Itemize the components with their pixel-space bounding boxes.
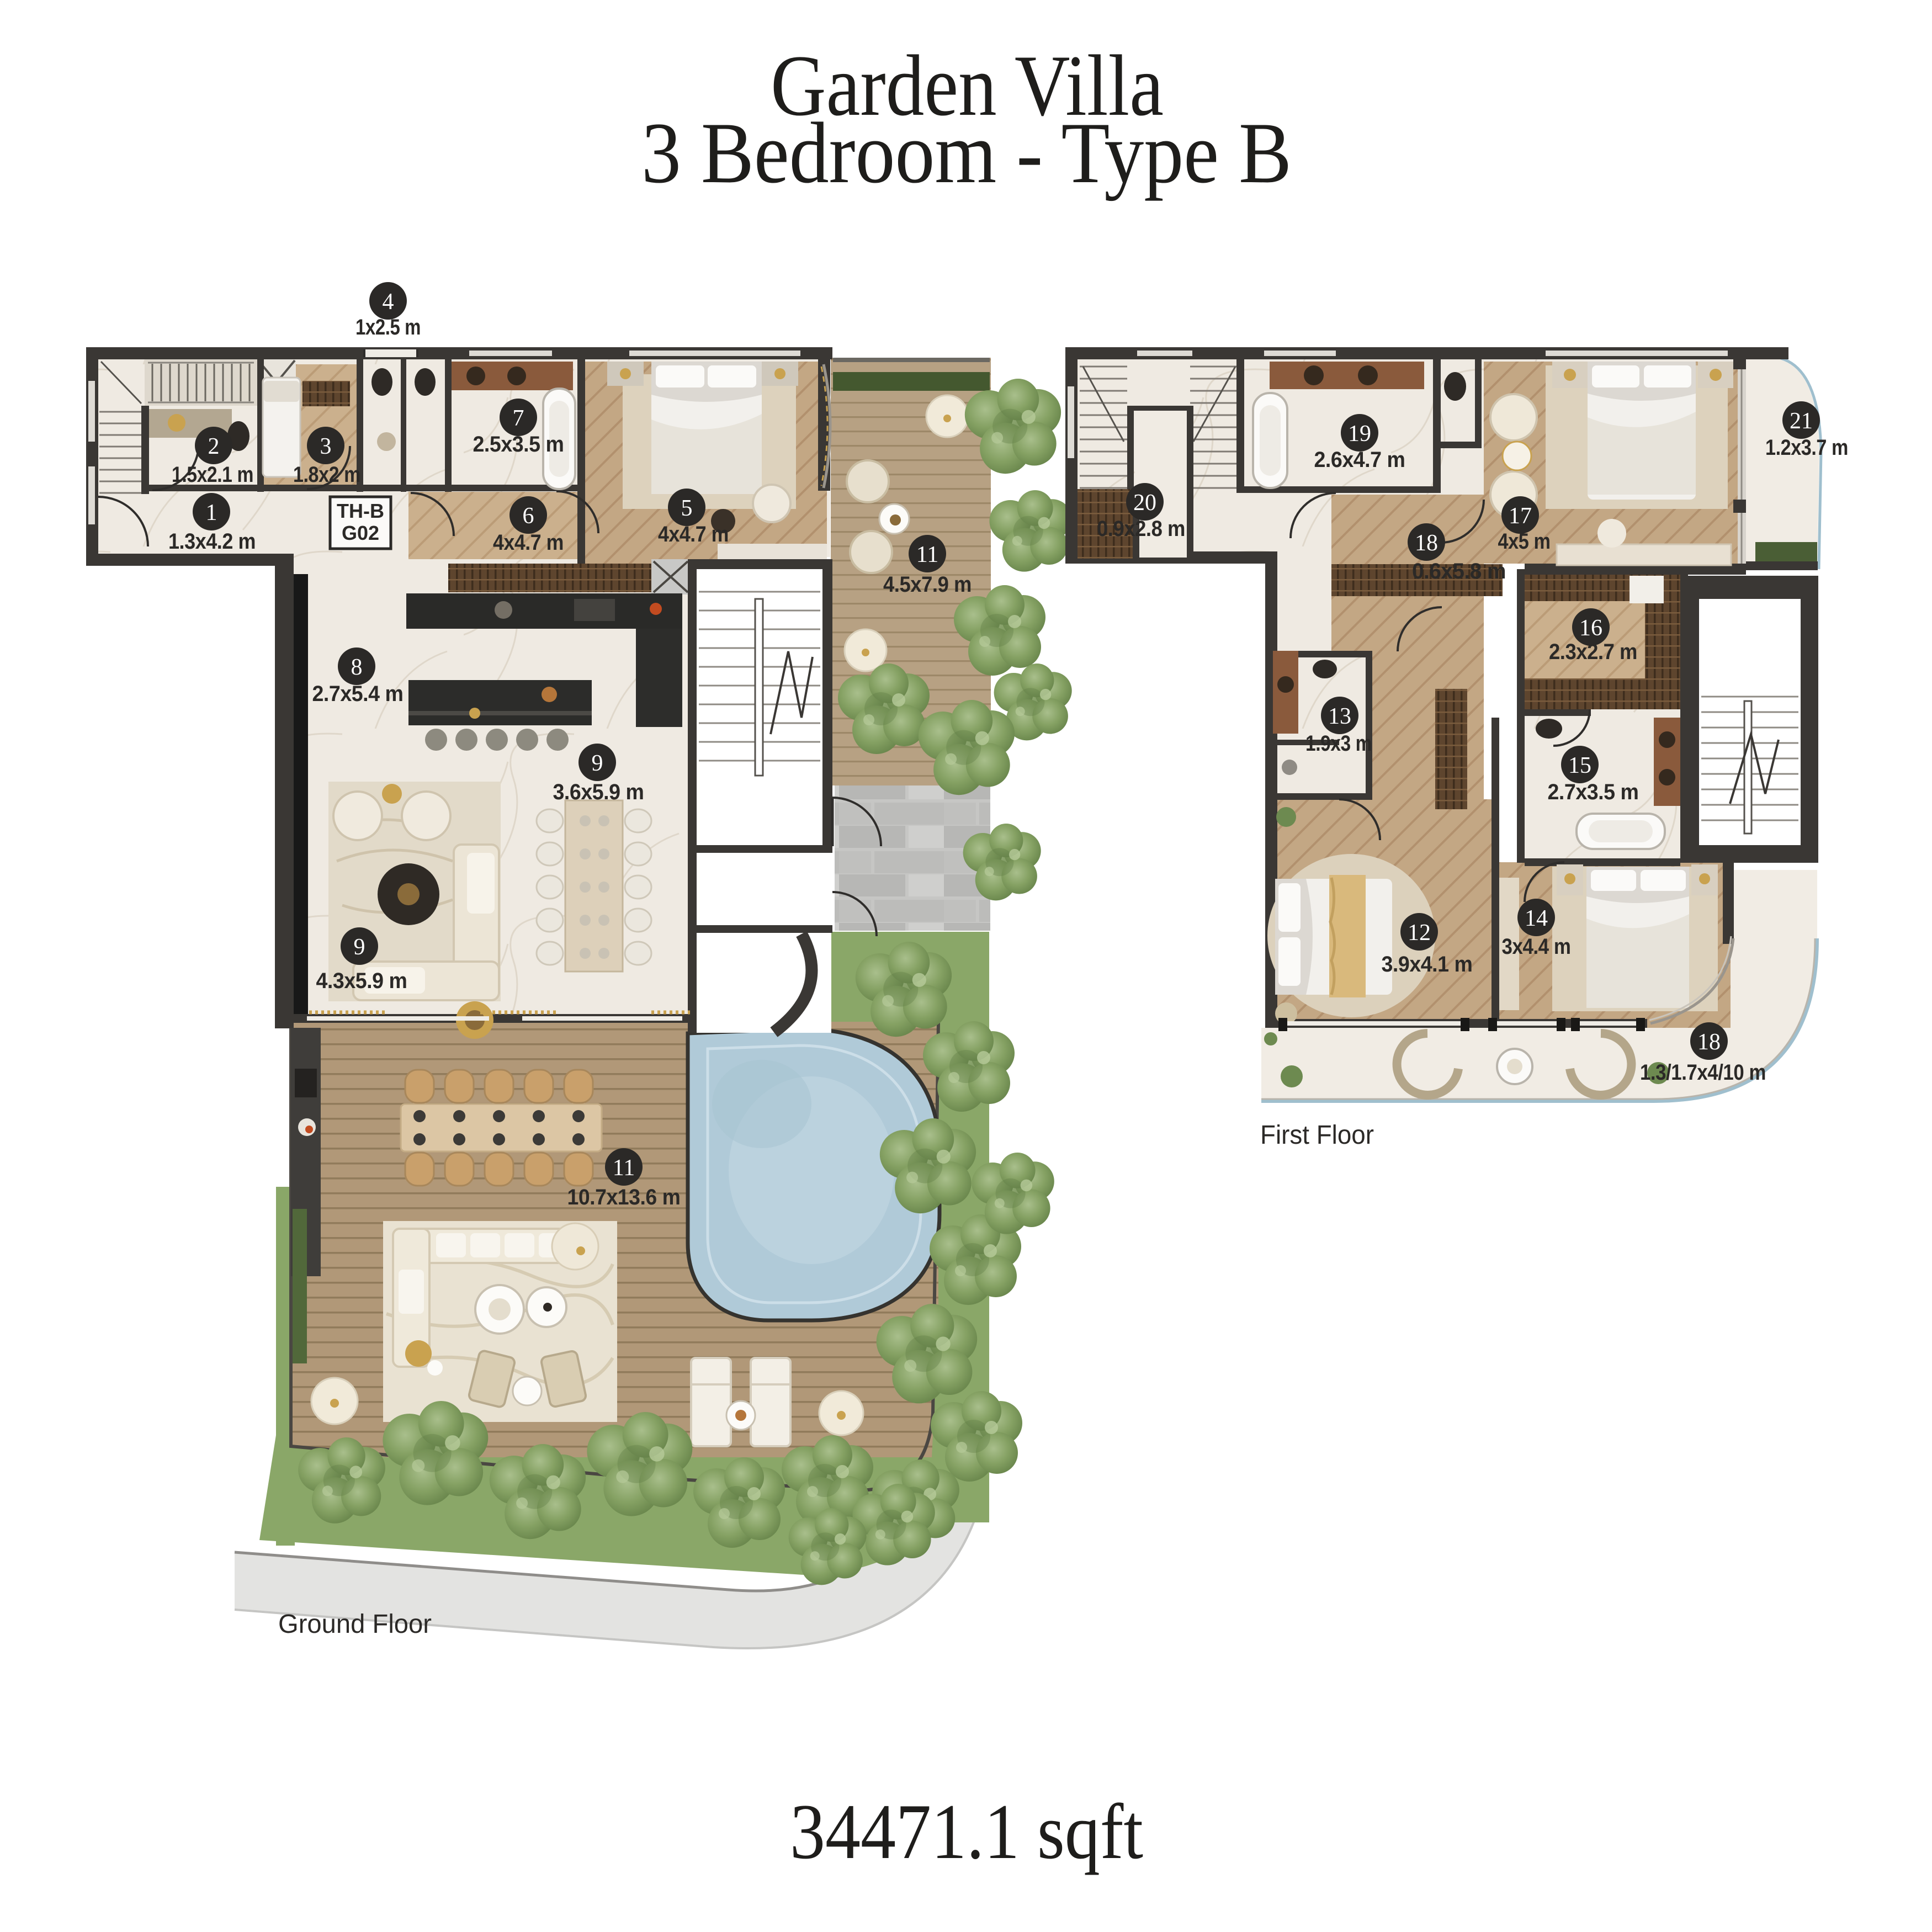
- svg-text:2.7x3.5 m: 2.7x3.5 m: [1548, 780, 1639, 804]
- svg-text:3 Bedroom - Type B: 3 Bedroom - Type B: [641, 105, 1292, 201]
- svg-text:TH-B: TH-B: [337, 500, 384, 522]
- svg-text:1x2.5 m: 1x2.5 m: [355, 315, 421, 339]
- svg-text:16: 16: [1579, 615, 1602, 641]
- svg-text:5: 5: [681, 496, 693, 521]
- svg-text:First Floor: First Floor: [1260, 1121, 1374, 1150]
- svg-text:1: 1: [206, 500, 217, 526]
- svg-text:2.3x2.7 m: 2.3x2.7 m: [1549, 640, 1637, 664]
- svg-text:4x4.7 m: 4x4.7 m: [493, 530, 564, 555]
- svg-text:2.7x5.4 m: 2.7x5.4 m: [312, 682, 404, 706]
- svg-text:1.3/1.7x4/10 m: 1.3/1.7x4/10 m: [1640, 1060, 1766, 1085]
- svg-text:2: 2: [208, 434, 220, 459]
- svg-text:4.3x5.9 m: 4.3x5.9 m: [316, 969, 407, 993]
- svg-text:0.6x5.8 m: 0.6x5.8 m: [1412, 559, 1506, 583]
- svg-text:3.6x5.9 m: 3.6x5.9 m: [553, 780, 644, 804]
- svg-text:17: 17: [1509, 503, 1532, 529]
- svg-text:G02: G02: [342, 522, 379, 544]
- svg-text:2.5x3.5 m: 2.5x3.5 m: [473, 432, 564, 457]
- svg-text:34471.1 sqft: 34471.1 sqft: [790, 1788, 1143, 1875]
- svg-text:10.7x13.6 m: 10.7x13.6 m: [567, 1185, 681, 1209]
- svg-text:3x4.4 m: 3x4.4 m: [1502, 935, 1571, 959]
- svg-text:11: 11: [916, 542, 938, 567]
- svg-text:1.3x4.2 m: 1.3x4.2 m: [168, 529, 256, 554]
- svg-text:9: 9: [354, 935, 365, 960]
- svg-text:1.9x3 m: 1.9x3 m: [1305, 731, 1372, 756]
- svg-text:11: 11: [613, 1155, 635, 1181]
- svg-text:3.9x4.1 m: 3.9x4.1 m: [1382, 952, 1473, 976]
- svg-text:4: 4: [383, 289, 394, 315]
- svg-text:9: 9: [592, 751, 603, 776]
- svg-text:12: 12: [1408, 920, 1431, 946]
- svg-text:20: 20: [1133, 490, 1156, 516]
- svg-text:19: 19: [1348, 421, 1371, 447]
- svg-text:1.5x2.1 m: 1.5x2.1 m: [172, 463, 253, 487]
- svg-text:4x4.7 m: 4x4.7 m: [658, 522, 729, 546]
- svg-text:1.8x2 m: 1.8x2 m: [293, 463, 360, 487]
- svg-text:0.9x2.8 m: 0.9x2.8 m: [1097, 517, 1185, 541]
- svg-text:4.5x7.9 m: 4.5x7.9 m: [883, 572, 972, 597]
- svg-text:21: 21: [1790, 408, 1813, 434]
- svg-text:3: 3: [320, 434, 332, 459]
- svg-text:4x5 m: 4x5 m: [1498, 529, 1551, 554]
- svg-text:2.6x4.7 m: 2.6x4.7 m: [1314, 448, 1405, 472]
- svg-text:13: 13: [1328, 704, 1351, 729]
- svg-text:Ground Floor: Ground Floor: [278, 1610, 432, 1639]
- svg-text:6: 6: [523, 503, 534, 529]
- svg-text:7: 7: [513, 406, 524, 431]
- svg-text:1.2x3.7 m: 1.2x3.7 m: [1765, 436, 1848, 460]
- svg-text:15: 15: [1568, 753, 1591, 778]
- svg-text:14: 14: [1525, 906, 1548, 931]
- svg-text:8: 8: [351, 655, 363, 680]
- svg-text:18: 18: [1415, 530, 1438, 556]
- svg-text:18: 18: [1697, 1029, 1721, 1055]
